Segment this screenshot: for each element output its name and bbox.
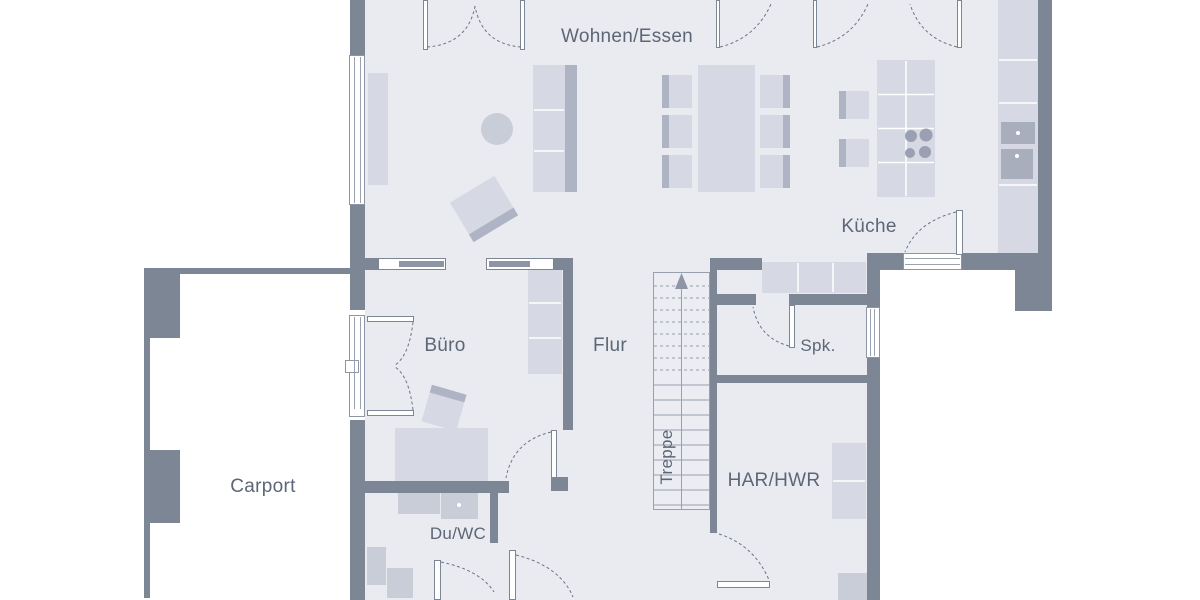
floor-plan: Wohnen/Essen Küche Büro Flur Spk. Treppe… xyxy=(0,0,1200,600)
wall-office-corner xyxy=(551,477,568,491)
kitchen-door-sill xyxy=(903,253,962,270)
chair-back xyxy=(783,115,790,148)
wall-left-middle xyxy=(350,205,365,310)
chair-back xyxy=(662,115,669,148)
office-french-door-leaf-top xyxy=(367,316,414,322)
chair-back xyxy=(783,75,790,108)
office-french-door-leaf-bottom xyxy=(367,410,414,416)
washer-dryer xyxy=(832,443,866,519)
wall-kitchen-south-left xyxy=(867,253,903,270)
sliding-door-left-track xyxy=(399,261,444,267)
wall-right-pantry-upper xyxy=(867,270,880,307)
dining-chair xyxy=(760,115,790,148)
sofa-main xyxy=(533,65,577,192)
shower xyxy=(441,493,478,519)
office-shelf xyxy=(528,270,562,374)
shower-door-leaf xyxy=(434,560,441,600)
sliding-door-right-track xyxy=(489,261,530,267)
dining-table xyxy=(698,65,755,192)
washbasin xyxy=(367,547,386,585)
room-label-buero: Büro xyxy=(424,335,465,357)
sofa-back xyxy=(565,65,577,192)
window-living xyxy=(349,55,365,205)
terrace-door-leaf xyxy=(423,0,428,50)
dining-chair xyxy=(760,75,790,108)
oven xyxy=(1001,122,1035,144)
wall-corner-block xyxy=(1015,270,1052,311)
room-label-wohnen-essen: Wohnen/Essen xyxy=(561,26,693,48)
pantry-door-leaf xyxy=(789,305,795,348)
wall-office-south xyxy=(365,481,509,493)
room-label-spk: Spk. xyxy=(800,336,835,356)
room-label-treppe: Treppe xyxy=(657,429,677,484)
wall-kitchen-south-right xyxy=(962,253,1052,270)
toilet xyxy=(387,568,413,598)
wall-stair-stub xyxy=(717,258,762,270)
utility-door-leaf xyxy=(717,581,770,588)
room-label-har-hwr: HAR/HWR xyxy=(728,470,821,492)
side-table-round xyxy=(481,113,513,145)
terrace-door-leaf xyxy=(813,0,817,48)
wall-left-lower xyxy=(350,420,365,600)
window-handle xyxy=(345,360,359,373)
wall-shower-east xyxy=(490,493,498,543)
terrace-door-leaf xyxy=(716,0,720,48)
stool-back xyxy=(839,91,846,119)
wall-right-lower xyxy=(867,358,880,600)
bar-stool xyxy=(839,139,869,167)
wall-right-kitchen xyxy=(1038,0,1052,253)
carport-post-top xyxy=(150,274,180,338)
microwave xyxy=(1001,149,1033,179)
wall-left-upper xyxy=(350,0,365,55)
chair-back xyxy=(662,75,669,108)
dining-chair xyxy=(760,155,790,188)
wall-office-east xyxy=(563,258,573,430)
sofa-left xyxy=(368,73,388,185)
wall-pantry-utility xyxy=(717,375,867,383)
wall-pantry-north-left xyxy=(710,294,756,305)
entry-door-leaf xyxy=(509,550,516,600)
bar-stool xyxy=(839,91,869,119)
stool-back xyxy=(839,139,846,167)
terrace-door-leaf xyxy=(520,0,525,50)
utility-appliance xyxy=(838,573,868,600)
terrace-door-leaf xyxy=(957,0,962,48)
office-door-leaf xyxy=(551,430,557,478)
dining-chair xyxy=(662,155,692,188)
room-label-carport: Carport xyxy=(230,476,295,498)
window-pantry xyxy=(866,307,880,358)
kitchen-island xyxy=(877,60,935,197)
room-label-du-wc: Du/WC xyxy=(430,524,486,544)
vanity xyxy=(398,493,440,514)
pantry-side-cabinets xyxy=(762,262,866,293)
chair-back xyxy=(662,155,669,188)
chair-back xyxy=(783,155,790,188)
room-label-kueche: Küche xyxy=(841,216,896,238)
wall-pantry-north-right xyxy=(789,294,867,305)
office-desk xyxy=(395,428,488,481)
kitchen-side-door-leaf xyxy=(956,210,963,255)
dining-chair xyxy=(662,115,692,148)
carport-post-bottom xyxy=(150,450,180,523)
dining-chair xyxy=(662,75,692,108)
room-label-flur: Flur xyxy=(593,335,627,357)
